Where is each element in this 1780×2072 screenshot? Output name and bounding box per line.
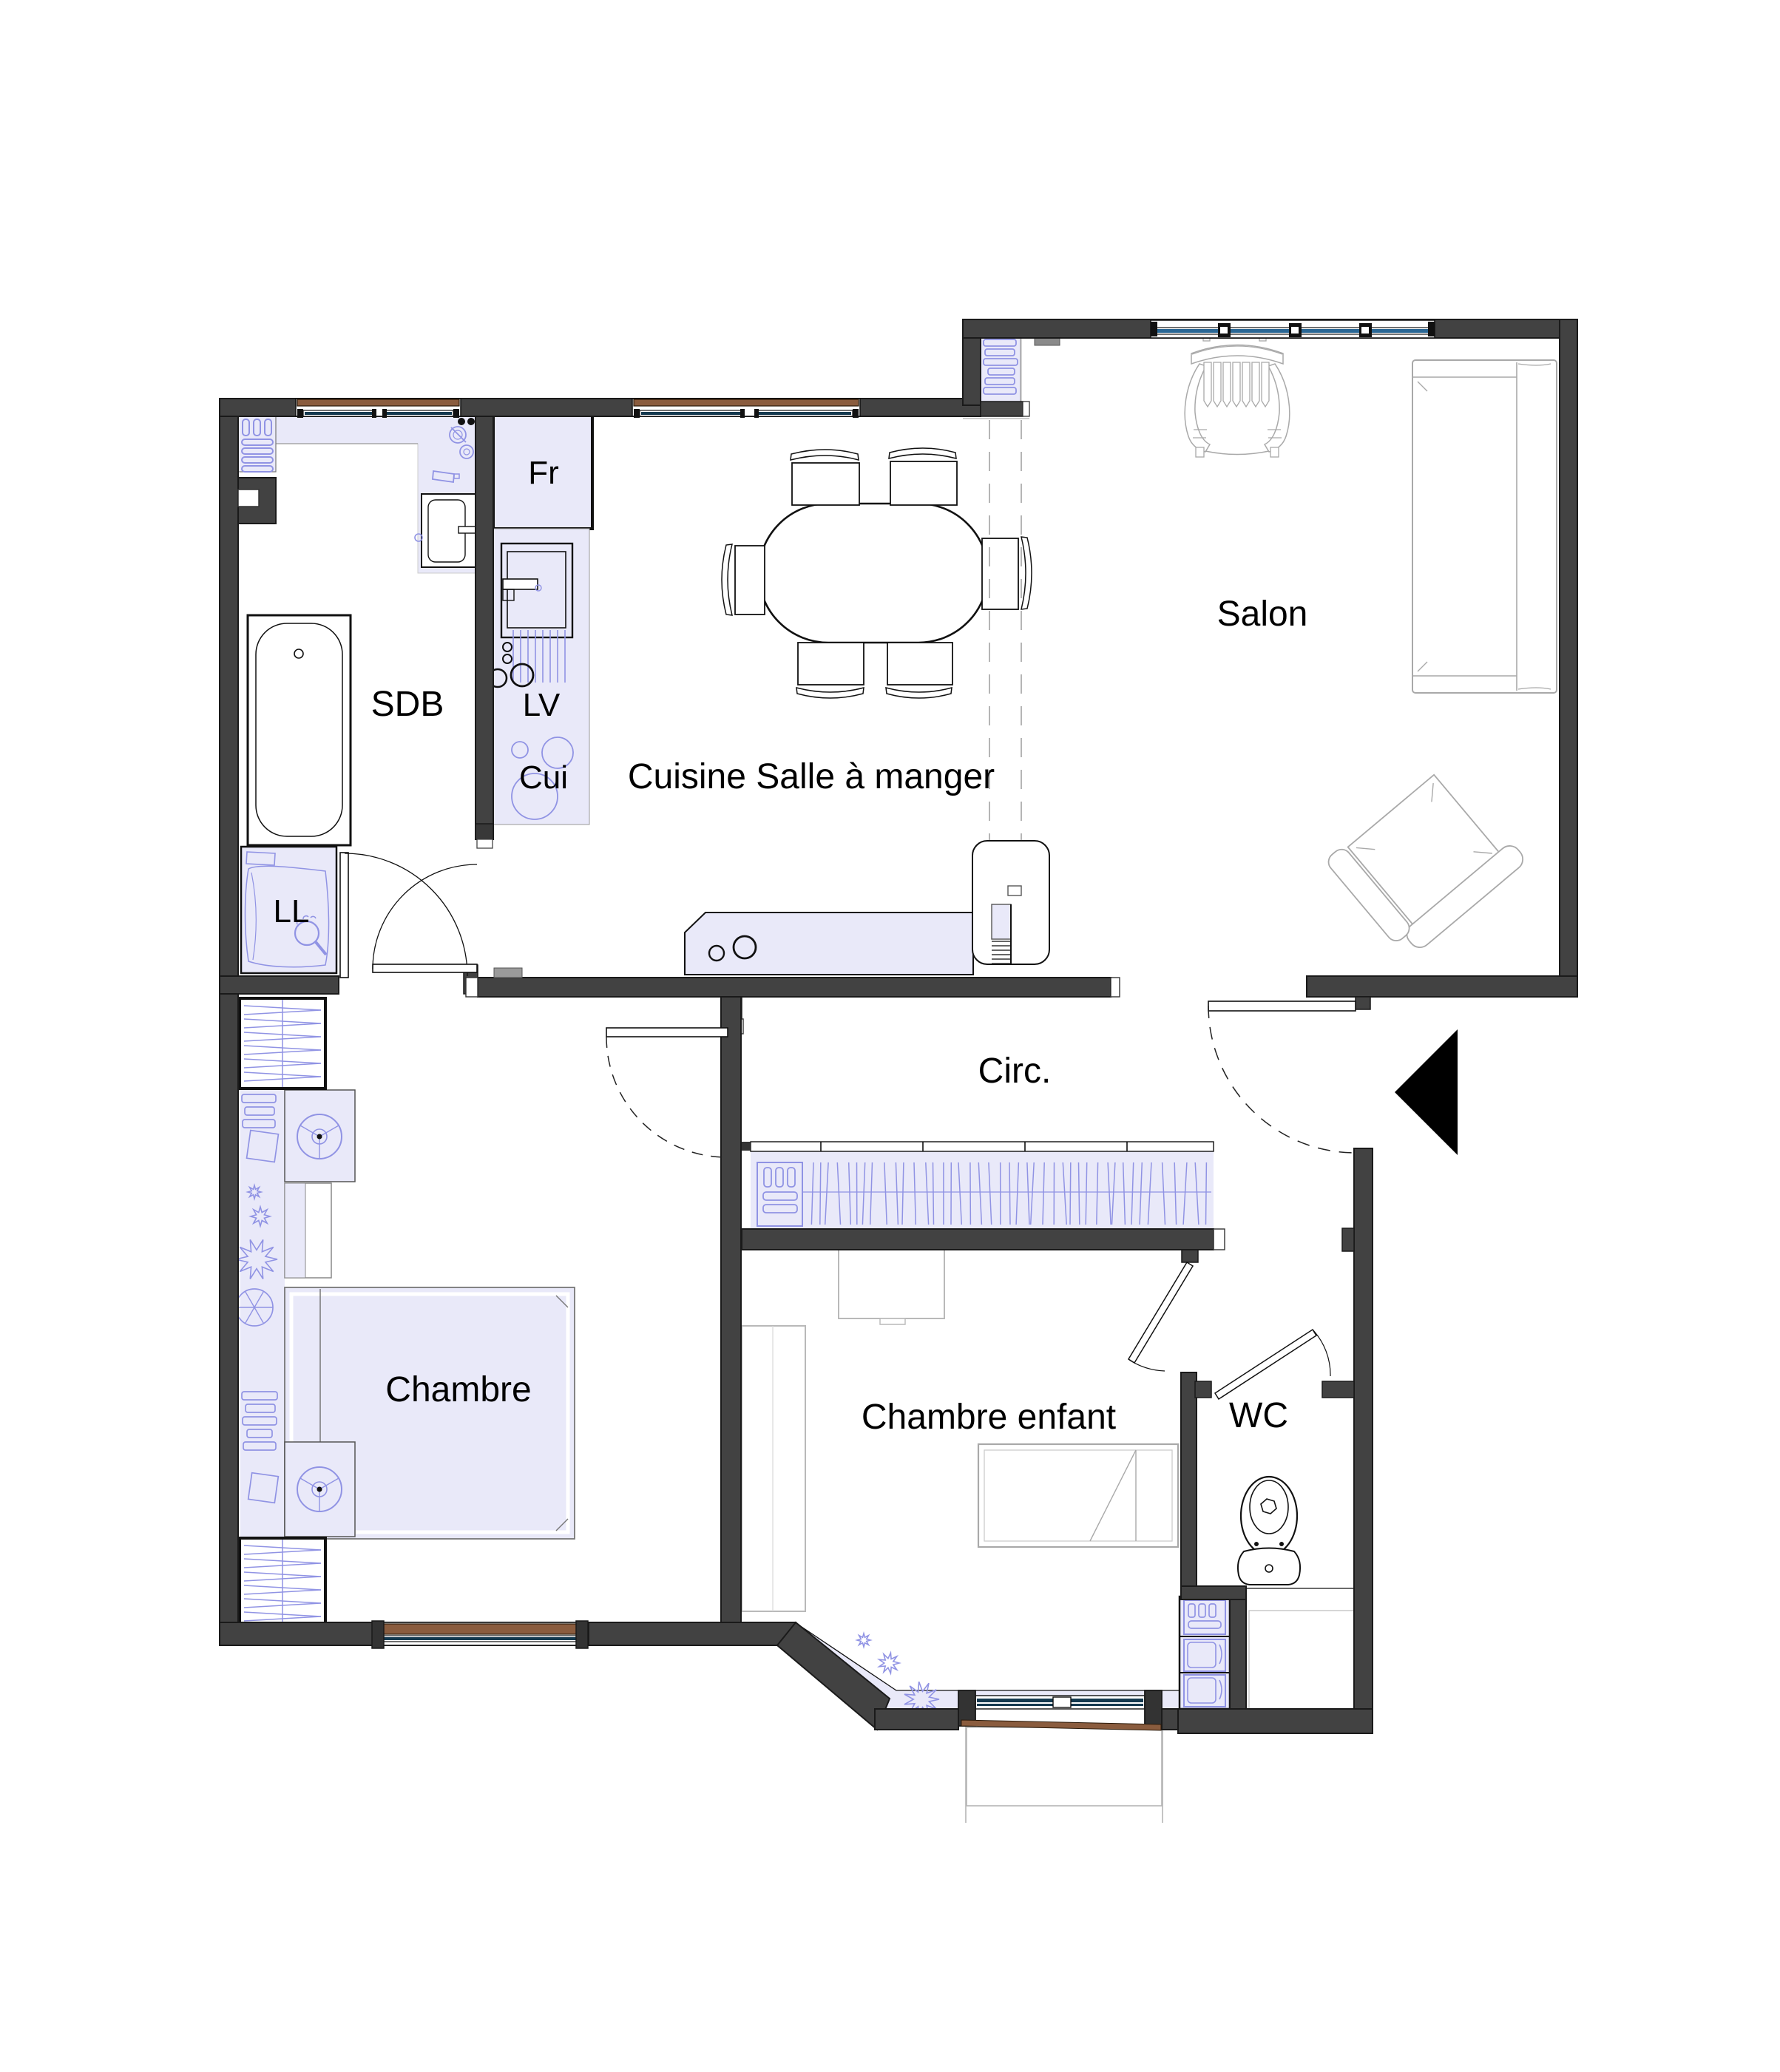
svg-text:Circ.: Circ. (978, 1052, 1052, 1091)
svg-text:Chambre: Chambre (385, 1370, 531, 1409)
svg-text:LL: LL (274, 893, 310, 930)
svg-text:SDB: SDB (371, 685, 444, 724)
svg-text:Fr: Fr (528, 455, 559, 491)
svg-text:Cuisine Salle à manger: Cuisine Salle à manger (628, 757, 995, 796)
svg-text:Salon: Salon (1217, 595, 1308, 634)
svg-text:LV: LV (523, 687, 561, 723)
svg-text:WC: WC (1229, 1396, 1288, 1435)
svg-text:Cui: Cui (519, 759, 568, 796)
svg-text:Chambre enfant: Chambre enfant (862, 1398, 1116, 1437)
